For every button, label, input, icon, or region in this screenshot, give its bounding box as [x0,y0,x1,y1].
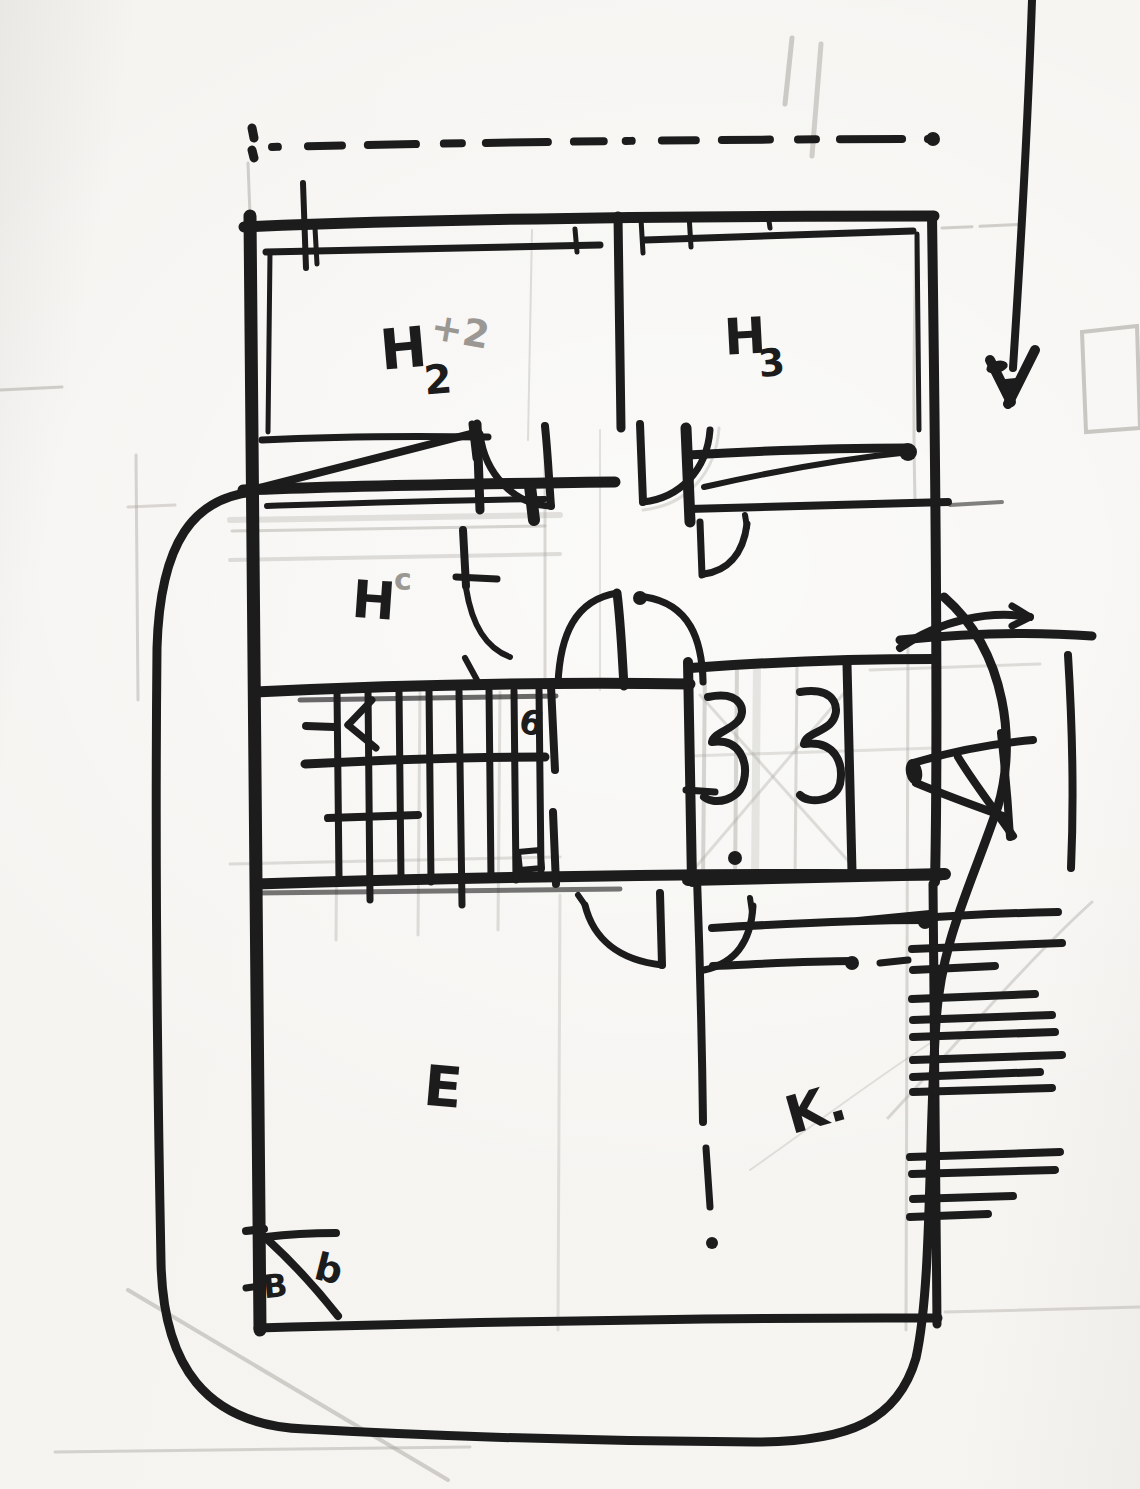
floor-plan-sketch: H 2 +2 H 3 H c E K. 6 B b [0,0,1140,1489]
interior-walls [243,216,1002,893]
label-corner-b: B [261,1266,289,1306]
label-room-h2-note: +2 [428,304,493,357]
label-room-hc: H [350,569,398,632]
down-arrow [985,0,1035,407]
deck-hatching [858,912,1062,1217]
pencil-construction-lines [0,38,1140,1480]
property-dash-line [252,128,940,158]
label-room-h3-sub: 3 [756,340,787,387]
sketch-paper: H 2 +2 H 3 H c E K. 6 B b [0,0,1140,1489]
label-corner-b2: b [310,1244,347,1293]
label-room-h2: H [377,314,429,383]
kitchen-details [697,878,932,1249]
bathroom-fixtures [686,664,852,872]
right-arrow [900,606,1092,868]
label-room-k: K. [779,1072,853,1146]
label-room-e: E [421,1053,465,1121]
label-room-hc-sup: c [394,562,412,597]
label-room-h2-sub: 2 [422,355,454,403]
